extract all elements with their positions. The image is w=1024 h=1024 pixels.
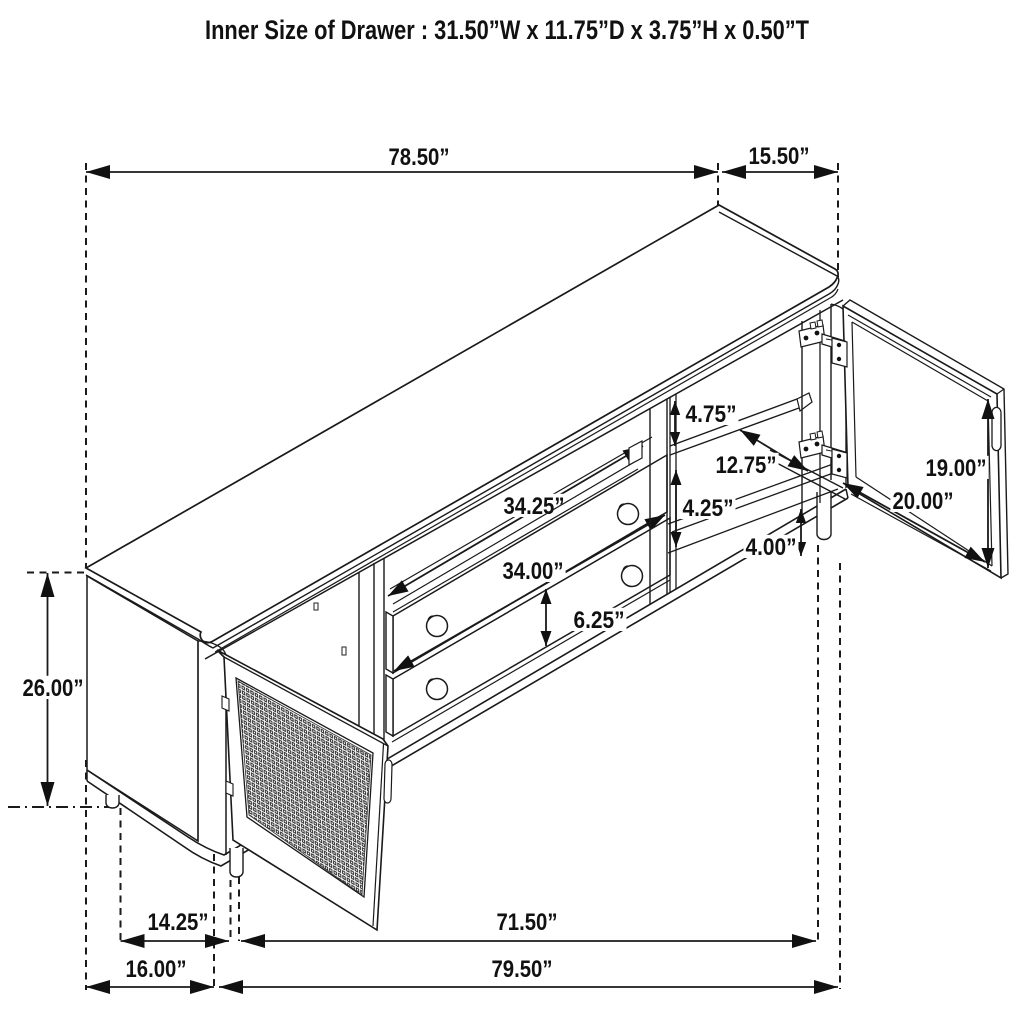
svg-text:4.75”: 4.75” — [686, 401, 737, 428]
svg-text:19.00”: 19.00” — [926, 455, 987, 482]
svg-text:34.25”: 34.25” — [504, 493, 565, 520]
svg-text:6.25”: 6.25” — [574, 607, 625, 634]
svg-text:71.50”: 71.50” — [497, 909, 558, 936]
svg-text:4.25”: 4.25” — [683, 495, 734, 522]
svg-text:34.00”: 34.00” — [503, 558, 564, 585]
svg-text:12.75”: 12.75” — [716, 452, 777, 479]
svg-text:78.50”: 78.50” — [389, 144, 450, 171]
svg-text:15.50”: 15.50” — [749, 143, 810, 170]
svg-text:79.50”: 79.50” — [492, 956, 553, 983]
svg-text:Inner Size of Drawer : 31.50”W: Inner Size of Drawer : 31.50”W x 11.75”D… — [205, 15, 809, 45]
svg-text:26.00”: 26.00” — [23, 675, 84, 702]
svg-text:20.00”: 20.00” — [893, 488, 954, 515]
svg-text:14.25”: 14.25” — [148, 909, 209, 936]
svg-text:16.00”: 16.00” — [126, 956, 187, 983]
svg-text:4.00”: 4.00” — [746, 534, 797, 561]
